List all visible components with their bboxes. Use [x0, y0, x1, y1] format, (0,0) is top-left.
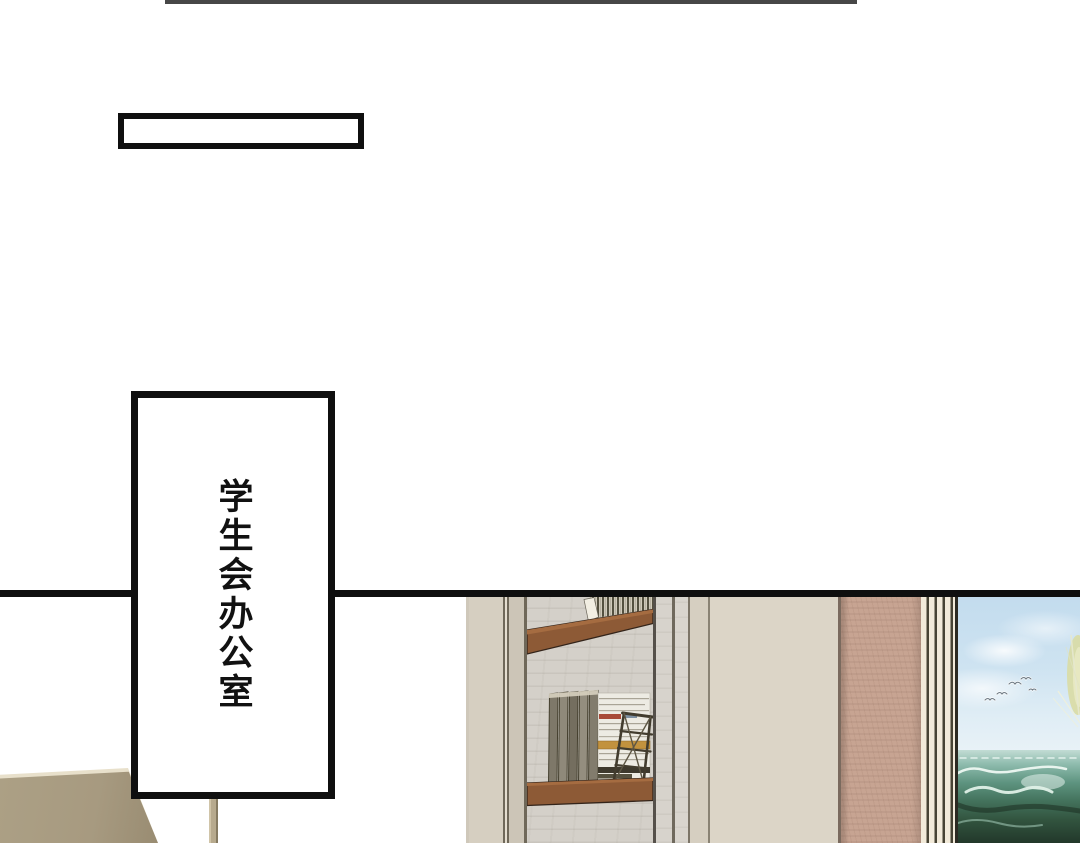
- comic-page: 学生会办公室: [0, 0, 1080, 843]
- sailboat-mast-icon: [1053, 635, 1080, 727]
- sea-painting: [958, 597, 1080, 843]
- book-spine: [549, 693, 559, 783]
- wall-panel: [690, 597, 708, 843]
- painting-details: [958, 597, 1080, 843]
- flat-beige-wall: [710, 597, 838, 843]
- stone-pillar: [841, 597, 921, 843]
- door-sign-text: 学生会办公室: [208, 478, 259, 712]
- wall-panel-inner: [509, 597, 524, 843]
- book-spine: [569, 692, 579, 784]
- book-spine: [579, 691, 589, 783]
- lamp-pole: [209, 795, 218, 843]
- office-interior-scene: [466, 597, 1080, 843]
- empty-caption-box: [118, 113, 364, 149]
- door-sign-box: 学生会办公室: [131, 391, 335, 799]
- wall-panel-left: [466, 597, 503, 843]
- marble-strip: [675, 597, 688, 843]
- marble-strip: [656, 597, 672, 843]
- wave-crests: [958, 758, 1080, 827]
- previous-panel-bottom-rule: [165, 0, 857, 4]
- book-spine: [559, 692, 569, 783]
- bookshelf-niche: [527, 597, 653, 843]
- bookshelf-contents: [527, 597, 653, 843]
- wall-moulding: [921, 597, 955, 843]
- white-book-stack: [598, 693, 650, 783]
- seagulls-icon: [985, 678, 1036, 701]
- book-spine: [589, 691, 599, 784]
